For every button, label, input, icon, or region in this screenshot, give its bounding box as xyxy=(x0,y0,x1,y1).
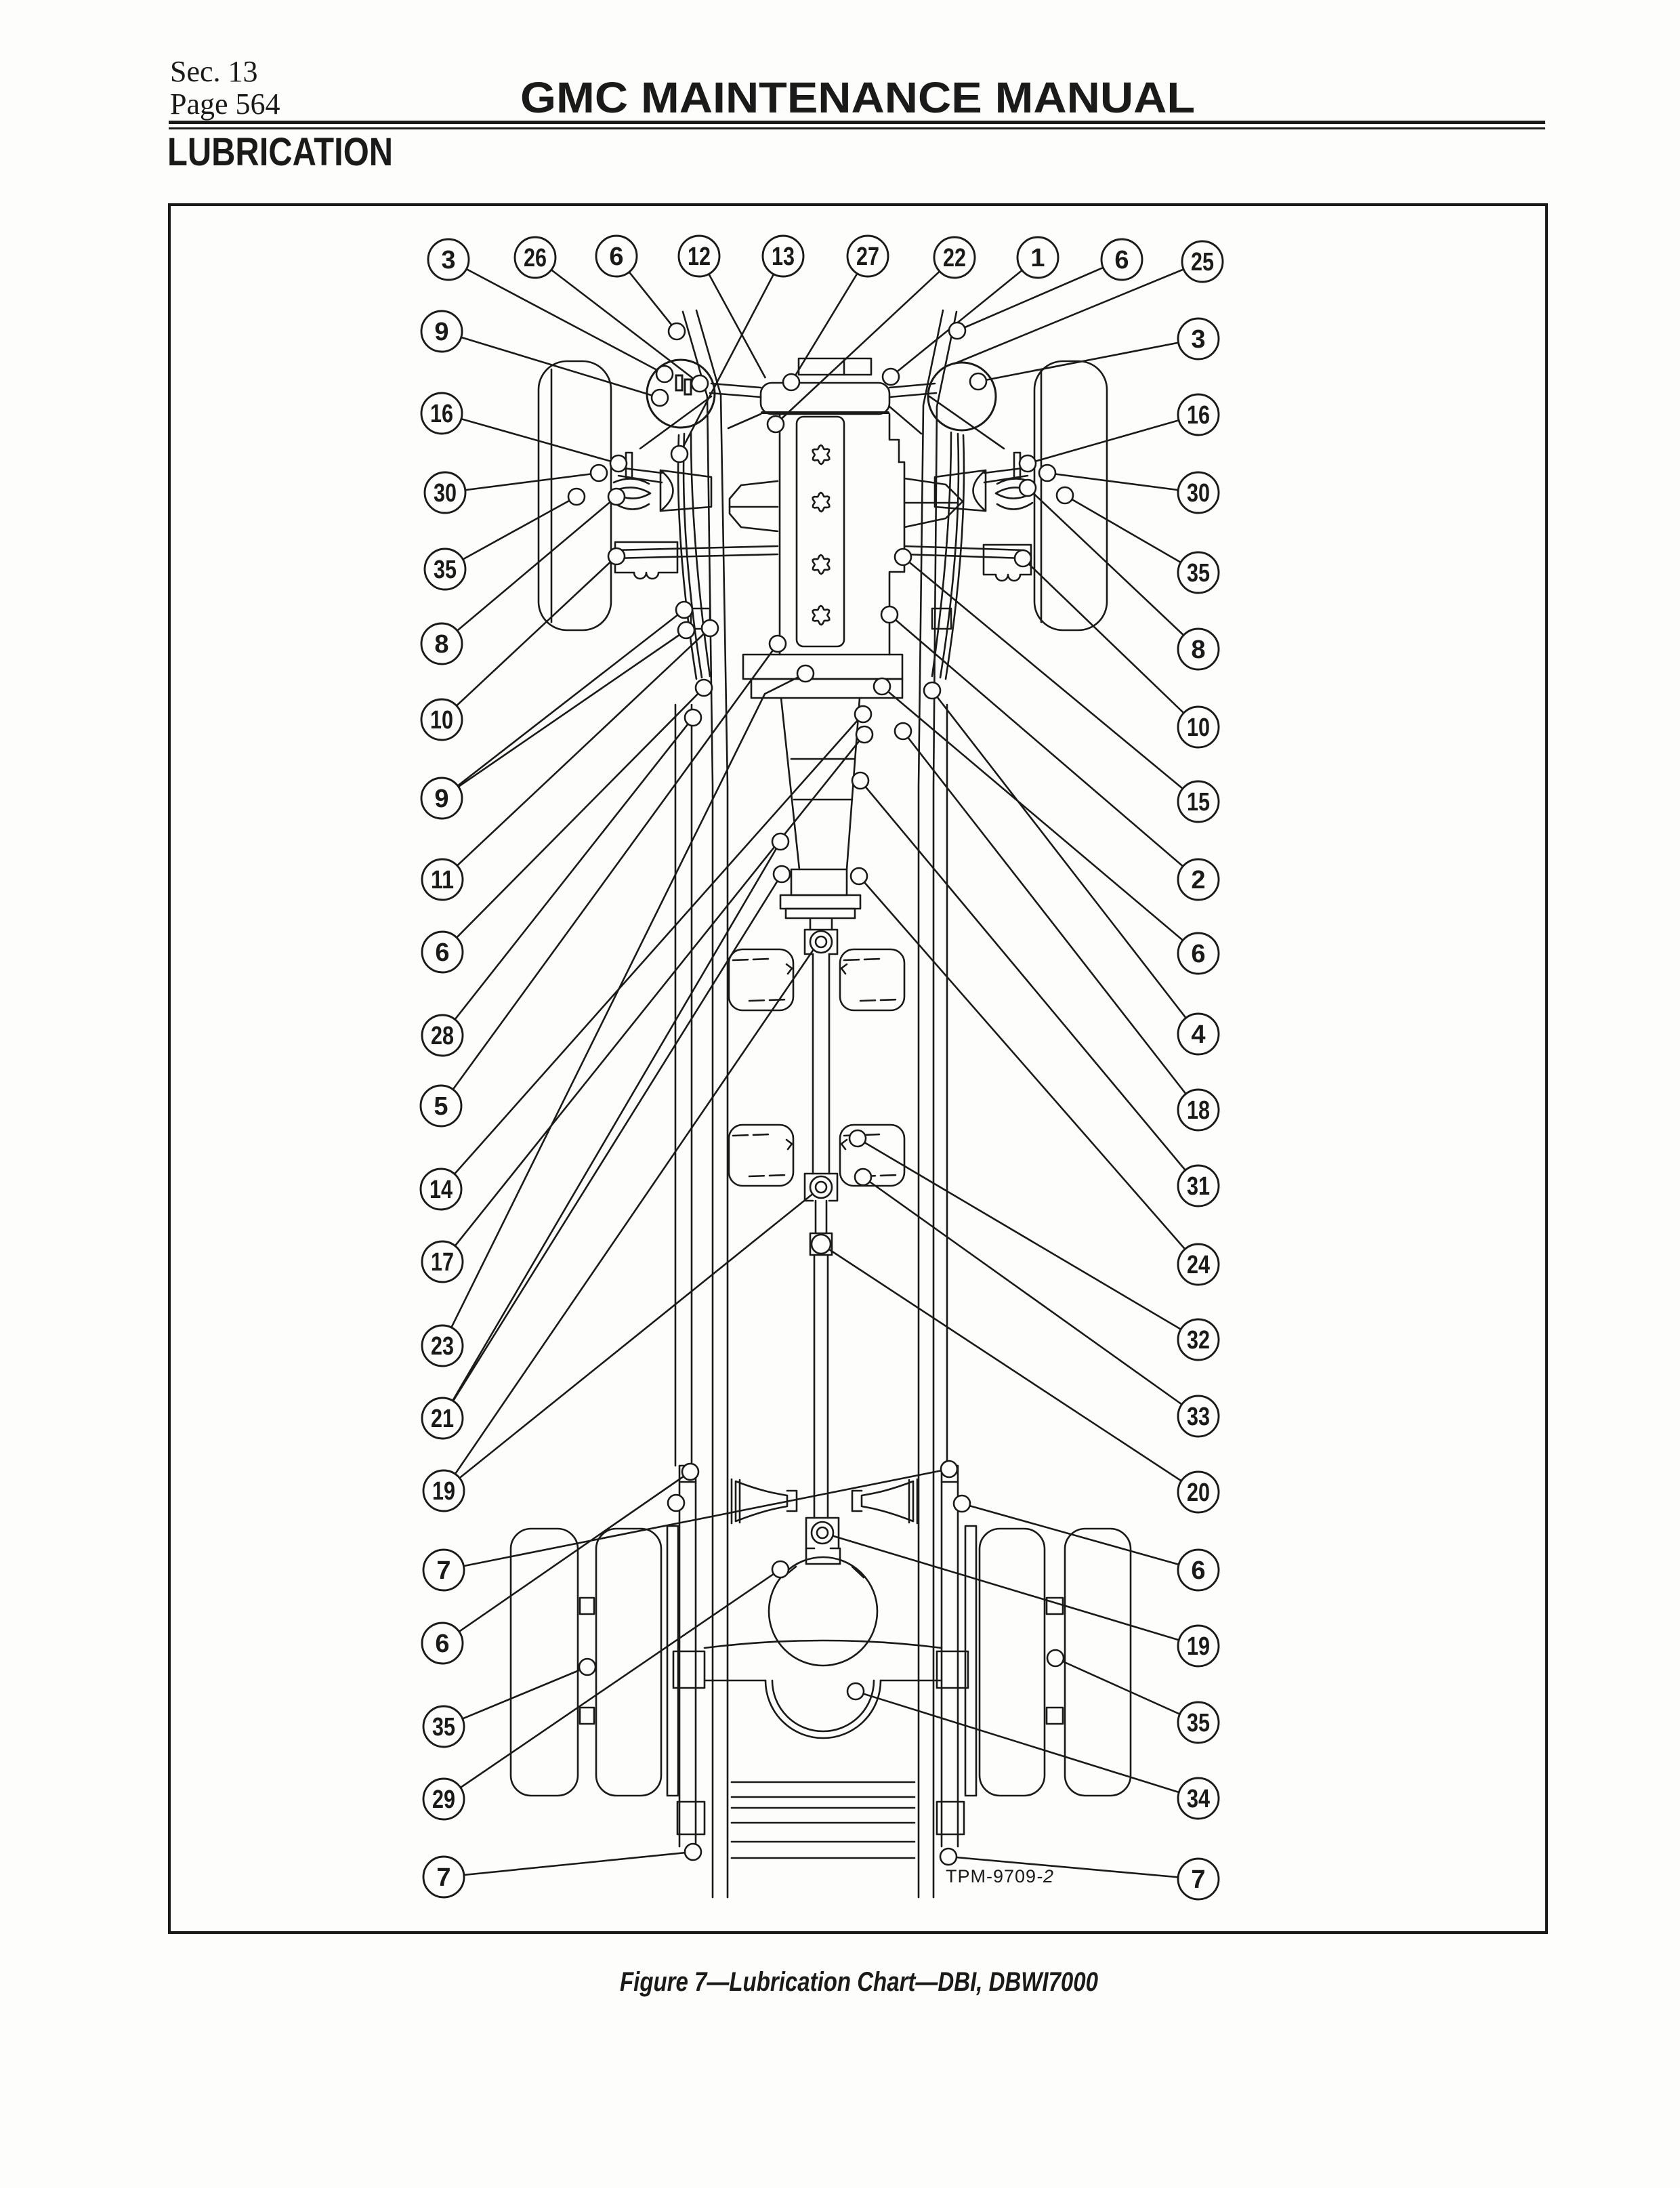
svg-text:8: 8 xyxy=(1191,636,1205,664)
svg-text:6: 6 xyxy=(1191,940,1205,968)
svg-text:32: 32 xyxy=(1187,1326,1210,1355)
svg-text:5: 5 xyxy=(434,1092,448,1121)
svg-text:10: 10 xyxy=(430,706,453,735)
svg-text:25: 25 xyxy=(1191,248,1214,276)
svg-text:6: 6 xyxy=(1191,1556,1205,1585)
svg-text:Page 564: Page 564 xyxy=(170,87,280,121)
svg-text:35: 35 xyxy=(1187,559,1210,587)
svg-text:23: 23 xyxy=(431,1332,454,1361)
svg-text:LUBRICATION: LUBRICATION xyxy=(167,130,393,174)
svg-text:Figure 7—Lubrication Chart—DBI: Figure 7—Lubrication Chart—DBI, DBWI7000 xyxy=(620,1967,1098,1997)
svg-text:27: 27 xyxy=(856,243,879,271)
svg-text:13: 13 xyxy=(772,243,795,271)
svg-text:4: 4 xyxy=(1191,1020,1205,1049)
svg-text:TPM-9709-2: TPM-9709-2 xyxy=(946,1866,1054,1886)
svg-text:3: 3 xyxy=(1191,325,1205,354)
svg-text:35: 35 xyxy=(432,1713,455,1741)
svg-text:30: 30 xyxy=(434,479,457,508)
svg-text:6: 6 xyxy=(609,243,623,271)
svg-text:35: 35 xyxy=(434,556,457,584)
svg-text:34: 34 xyxy=(1187,1785,1210,1813)
svg-text:3: 3 xyxy=(441,246,455,274)
svg-text:Sec. 13: Sec. 13 xyxy=(170,55,258,88)
svg-text:26: 26 xyxy=(524,244,547,272)
svg-text:19: 19 xyxy=(432,1477,455,1506)
svg-text:35: 35 xyxy=(1187,1709,1210,1737)
svg-text:7: 7 xyxy=(1191,1865,1205,1894)
svg-text:22: 22 xyxy=(943,244,966,272)
svg-text:7: 7 xyxy=(436,1556,450,1585)
svg-text:9: 9 xyxy=(434,785,448,813)
svg-text:30: 30 xyxy=(1187,479,1210,508)
svg-text:33: 33 xyxy=(1187,1403,1210,1431)
svg-text:6: 6 xyxy=(435,938,449,967)
svg-text:10: 10 xyxy=(1187,714,1210,742)
svg-text:28: 28 xyxy=(431,1022,454,1050)
svg-text:9: 9 xyxy=(434,318,448,346)
svg-text:16: 16 xyxy=(430,400,453,428)
svg-text:31: 31 xyxy=(1187,1172,1210,1201)
svg-text:24: 24 xyxy=(1187,1251,1210,1279)
svg-text:1: 1 xyxy=(1030,244,1045,272)
svg-text:15: 15 xyxy=(1187,788,1210,817)
svg-text:19: 19 xyxy=(1187,1632,1210,1661)
svg-text:11: 11 xyxy=(431,866,454,894)
svg-text:21: 21 xyxy=(431,1405,454,1433)
svg-text:20: 20 xyxy=(1187,1479,1210,1507)
svg-text:29: 29 xyxy=(432,1786,455,1814)
svg-text:8: 8 xyxy=(434,630,448,659)
svg-text:6: 6 xyxy=(435,1630,449,1658)
svg-text:7: 7 xyxy=(436,1863,450,1892)
svg-text:12: 12 xyxy=(688,243,711,271)
svg-text:2: 2 xyxy=(1191,866,1205,894)
svg-text:GMC MAINTENANCE MANUAL: GMC MAINTENANCE MANUAL xyxy=(520,73,1195,122)
svg-text:17: 17 xyxy=(431,1248,454,1277)
svg-text:18: 18 xyxy=(1187,1096,1210,1125)
svg-text:6: 6 xyxy=(1114,246,1129,274)
svg-text:16: 16 xyxy=(1187,401,1210,430)
svg-text:14: 14 xyxy=(429,1176,453,1204)
